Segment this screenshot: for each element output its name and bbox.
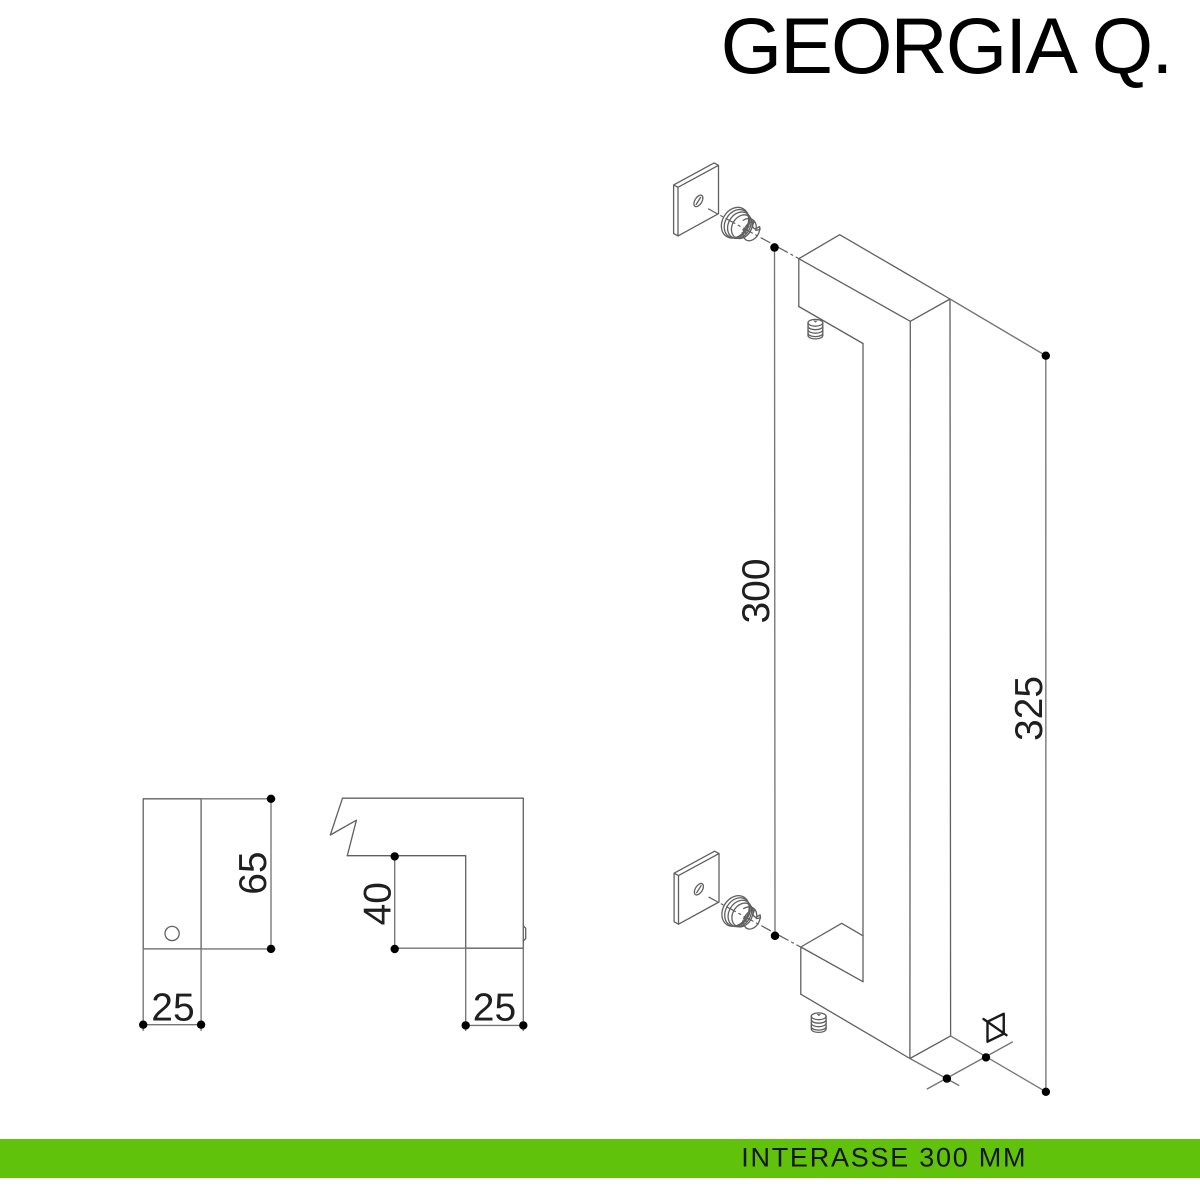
svg-text:GEORGIA Q.: GEORGIA Q. [721,1,1172,90]
svg-text:25: 25 [151,987,194,1030]
svg-text:40: 40 [357,882,400,925]
svg-text:25: 25 [473,987,516,1030]
svg-text:325: 325 [1008,676,1051,741]
svg-text:300: 300 [735,558,778,623]
svg-text:65: 65 [232,851,275,894]
svg-text:INTERASSE 300 MM: INTERASSE 300 MM [741,1142,1027,1172]
